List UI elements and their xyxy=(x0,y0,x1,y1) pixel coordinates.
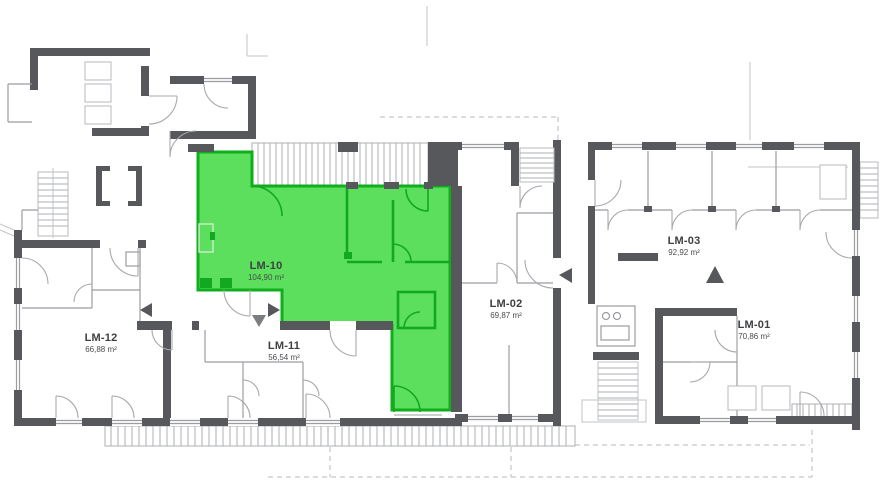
entrance-arrow-down-corridor xyxy=(252,315,266,327)
entrance-arrow-lm03 xyxy=(706,266,724,283)
exterior-stair-right xyxy=(860,162,878,218)
floorplan-drawing xyxy=(0,0,888,500)
unit-lm10-region[interactable] xyxy=(198,152,450,410)
utility-room-core xyxy=(597,306,635,346)
stairwell-center-right xyxy=(582,362,646,422)
terrace-bottom-hatch xyxy=(105,426,575,446)
stairwell-left xyxy=(38,168,68,238)
entrance-arrow-right-corridor xyxy=(268,303,280,317)
entrance-arrow-left-corridor xyxy=(140,303,152,317)
stair-lobby-top xyxy=(520,148,554,182)
unit-lm10-highlight[interactable] xyxy=(198,152,450,425)
floorplan-canvas: LM-12 66,88 m² LM-11 56,54 m² LM-10 104,… xyxy=(0,0,888,500)
